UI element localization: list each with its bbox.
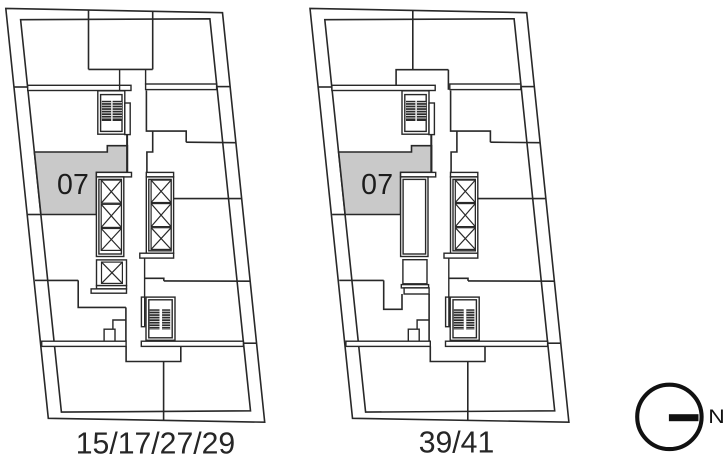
svg-text:07: 07	[361, 169, 393, 201]
svg-text:07: 07	[57, 169, 89, 201]
svg-text:N: N	[708, 406, 725, 428]
svg-text:15/17/27/29: 15/17/27/29	[76, 428, 235, 461]
svg-text:39/41: 39/41	[419, 427, 495, 460]
